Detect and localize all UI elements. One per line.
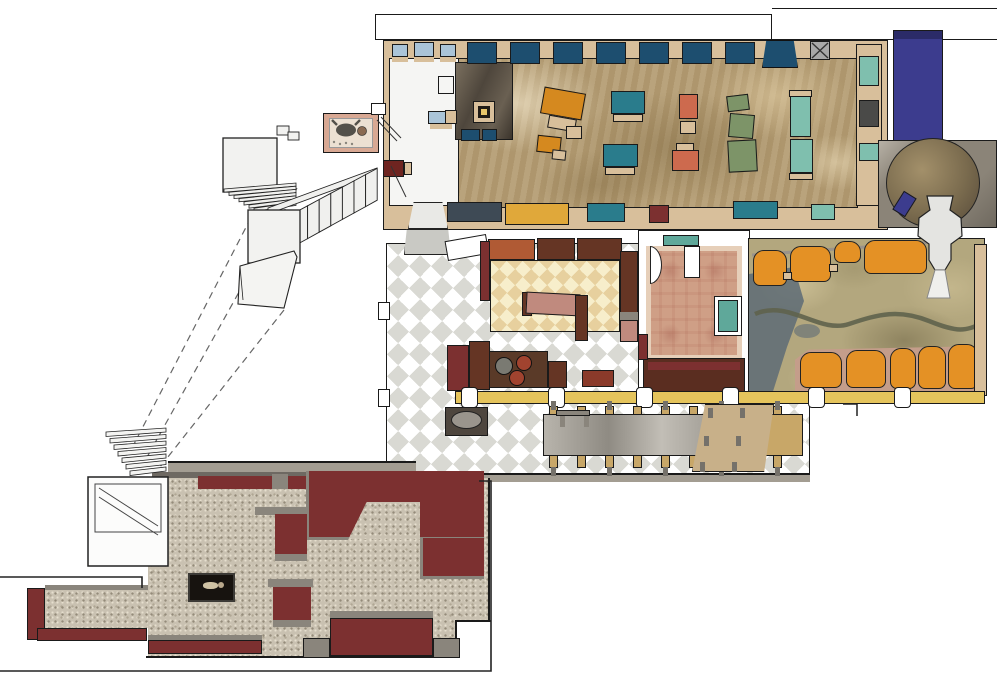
hearth-fire [481,109,487,115]
dining-table-mint [790,139,813,173]
table-post [775,401,780,410]
cellar-alcove [275,514,307,555]
hearth-bench [461,129,480,141]
door-jamb [275,554,307,561]
door-jamb [268,579,313,587]
door-jamb [273,620,311,627]
cellar-bottom-cover [146,656,458,680]
kitchen-table [525,292,580,317]
wall-stub [684,246,700,278]
dining-bench [789,173,813,180]
kitchen-banquette [577,238,622,260]
entry-bench [440,44,456,57]
stand-leg [584,416,589,427]
table-post [607,401,612,410]
window-booth [510,42,540,64]
cook-seat [548,361,567,388]
sink-basin [451,411,482,429]
lounge-booth [918,346,946,389]
lounge-right-wall-seat [974,244,987,396]
hearth-bench [482,129,497,141]
banquette-cushion [648,362,740,370]
cellar-notch-cover [455,620,491,660]
entry-bench [414,42,434,57]
corridor-floor [45,590,148,628]
step-corner-line [843,404,857,416]
bench-end-cap [404,162,412,175]
dining-bench [613,114,643,122]
booth-side-table [829,264,838,272]
banquette-divider [620,312,638,320]
lounge-booth [864,240,927,274]
burner-red [516,355,532,371]
private-cabinet [638,334,648,360]
cook-column [469,341,490,390]
dining-table-green [726,94,750,113]
dining-bench [552,149,567,160]
lounge-booth [790,246,831,282]
kitchen-post [480,241,490,301]
bench-yellow [505,203,569,225]
ramp-post [704,436,709,446]
lounge-booth [753,250,787,286]
elevator-shaft [810,41,830,60]
bar-column [894,387,911,408]
mural-panel [329,118,373,148]
wall-stub [445,110,457,124]
window-booth [725,42,755,64]
wall-service-block [859,100,879,127]
entry-bench [392,44,408,57]
window-booth [596,42,626,64]
corridor-wall-bottom [37,628,147,641]
bench-slate [447,202,502,222]
table-post [551,401,556,410]
bench-base [392,57,408,62]
sidewalk-band-left [375,14,772,40]
trapezoid-booth [762,40,798,68]
cellar-wall-maroon [148,640,262,654]
kitchen-banquette-rust [488,239,535,260]
wine-platform-lower [420,538,484,579]
dining-table-mint [790,96,811,137]
lounge-booth [890,348,916,389]
kitchen-seat-pink [620,320,638,342]
grand-stair [223,126,377,308]
lounge-booth [834,241,861,263]
dining-table-teal [603,144,638,167]
private-bench-teal [718,300,738,332]
projection-dashed-lines [132,175,297,467]
small-table-maroon [582,370,614,387]
stair-between-floors-upper [408,202,448,229]
booth-side-table [783,272,792,280]
window-booth [682,42,712,64]
ramp-post [700,462,705,472]
dining-table-teal [611,91,645,114]
bar-column [461,387,478,408]
dining-table-green [727,139,758,172]
wall-notch [378,302,390,320]
dining-table-salmon [679,94,698,119]
bench-base [414,57,434,62]
table-post [663,401,668,410]
stage-edge [894,31,942,39]
dining-table-salmon [672,150,699,171]
ramp-post [736,436,741,446]
window-booth [639,42,669,64]
bench-maroon [649,205,669,223]
table-post [607,467,612,476]
bench-base [430,124,452,129]
display-figure-head [218,582,224,588]
ramp-post [740,408,745,418]
dining-bench [566,126,582,139]
stand-leg [560,416,565,427]
bench-base [440,57,456,62]
bench-teal [733,201,778,219]
door-jamb [272,474,288,489]
kitchen-banquette-corner [620,251,638,314]
table-post [775,467,780,476]
wall-seat-mint [859,143,879,161]
burner-red [509,370,525,386]
table-end-bar [575,295,588,341]
private-bench-teal [663,235,699,246]
dining-table-green [728,113,755,139]
wall-seat-mint [859,56,879,86]
stage-side-block [303,638,330,658]
window-booth [467,42,497,64]
kitchen-banquette [537,238,575,260]
dining-bench [605,167,635,175]
cellar-wall-band [198,476,308,489]
window-booth [553,42,583,64]
cook-backrest [447,345,469,391]
lounge-booth [846,350,886,388]
landing-bench-maroon [383,160,404,177]
sidewalk-band-right [772,8,997,40]
ramp-post [732,462,737,472]
bar-column [636,387,653,408]
display-figure [203,582,218,589]
cellar-alcove [273,587,311,621]
bar-column [808,387,825,408]
table-post [663,467,668,476]
stage-side-block [433,638,460,658]
wall-stub [371,103,386,115]
bench-mint [811,204,835,220]
wall-stub [438,76,454,94]
cellar-stage [330,618,433,656]
stage-platform [893,30,943,152]
floor-plan-canvas [0,0,997,697]
wall-notch [378,389,390,407]
ramp-post [708,408,713,418]
bench-teal [587,203,625,222]
table-post [551,467,556,476]
dining-bench [680,121,696,134]
lounge-booth [800,352,842,388]
